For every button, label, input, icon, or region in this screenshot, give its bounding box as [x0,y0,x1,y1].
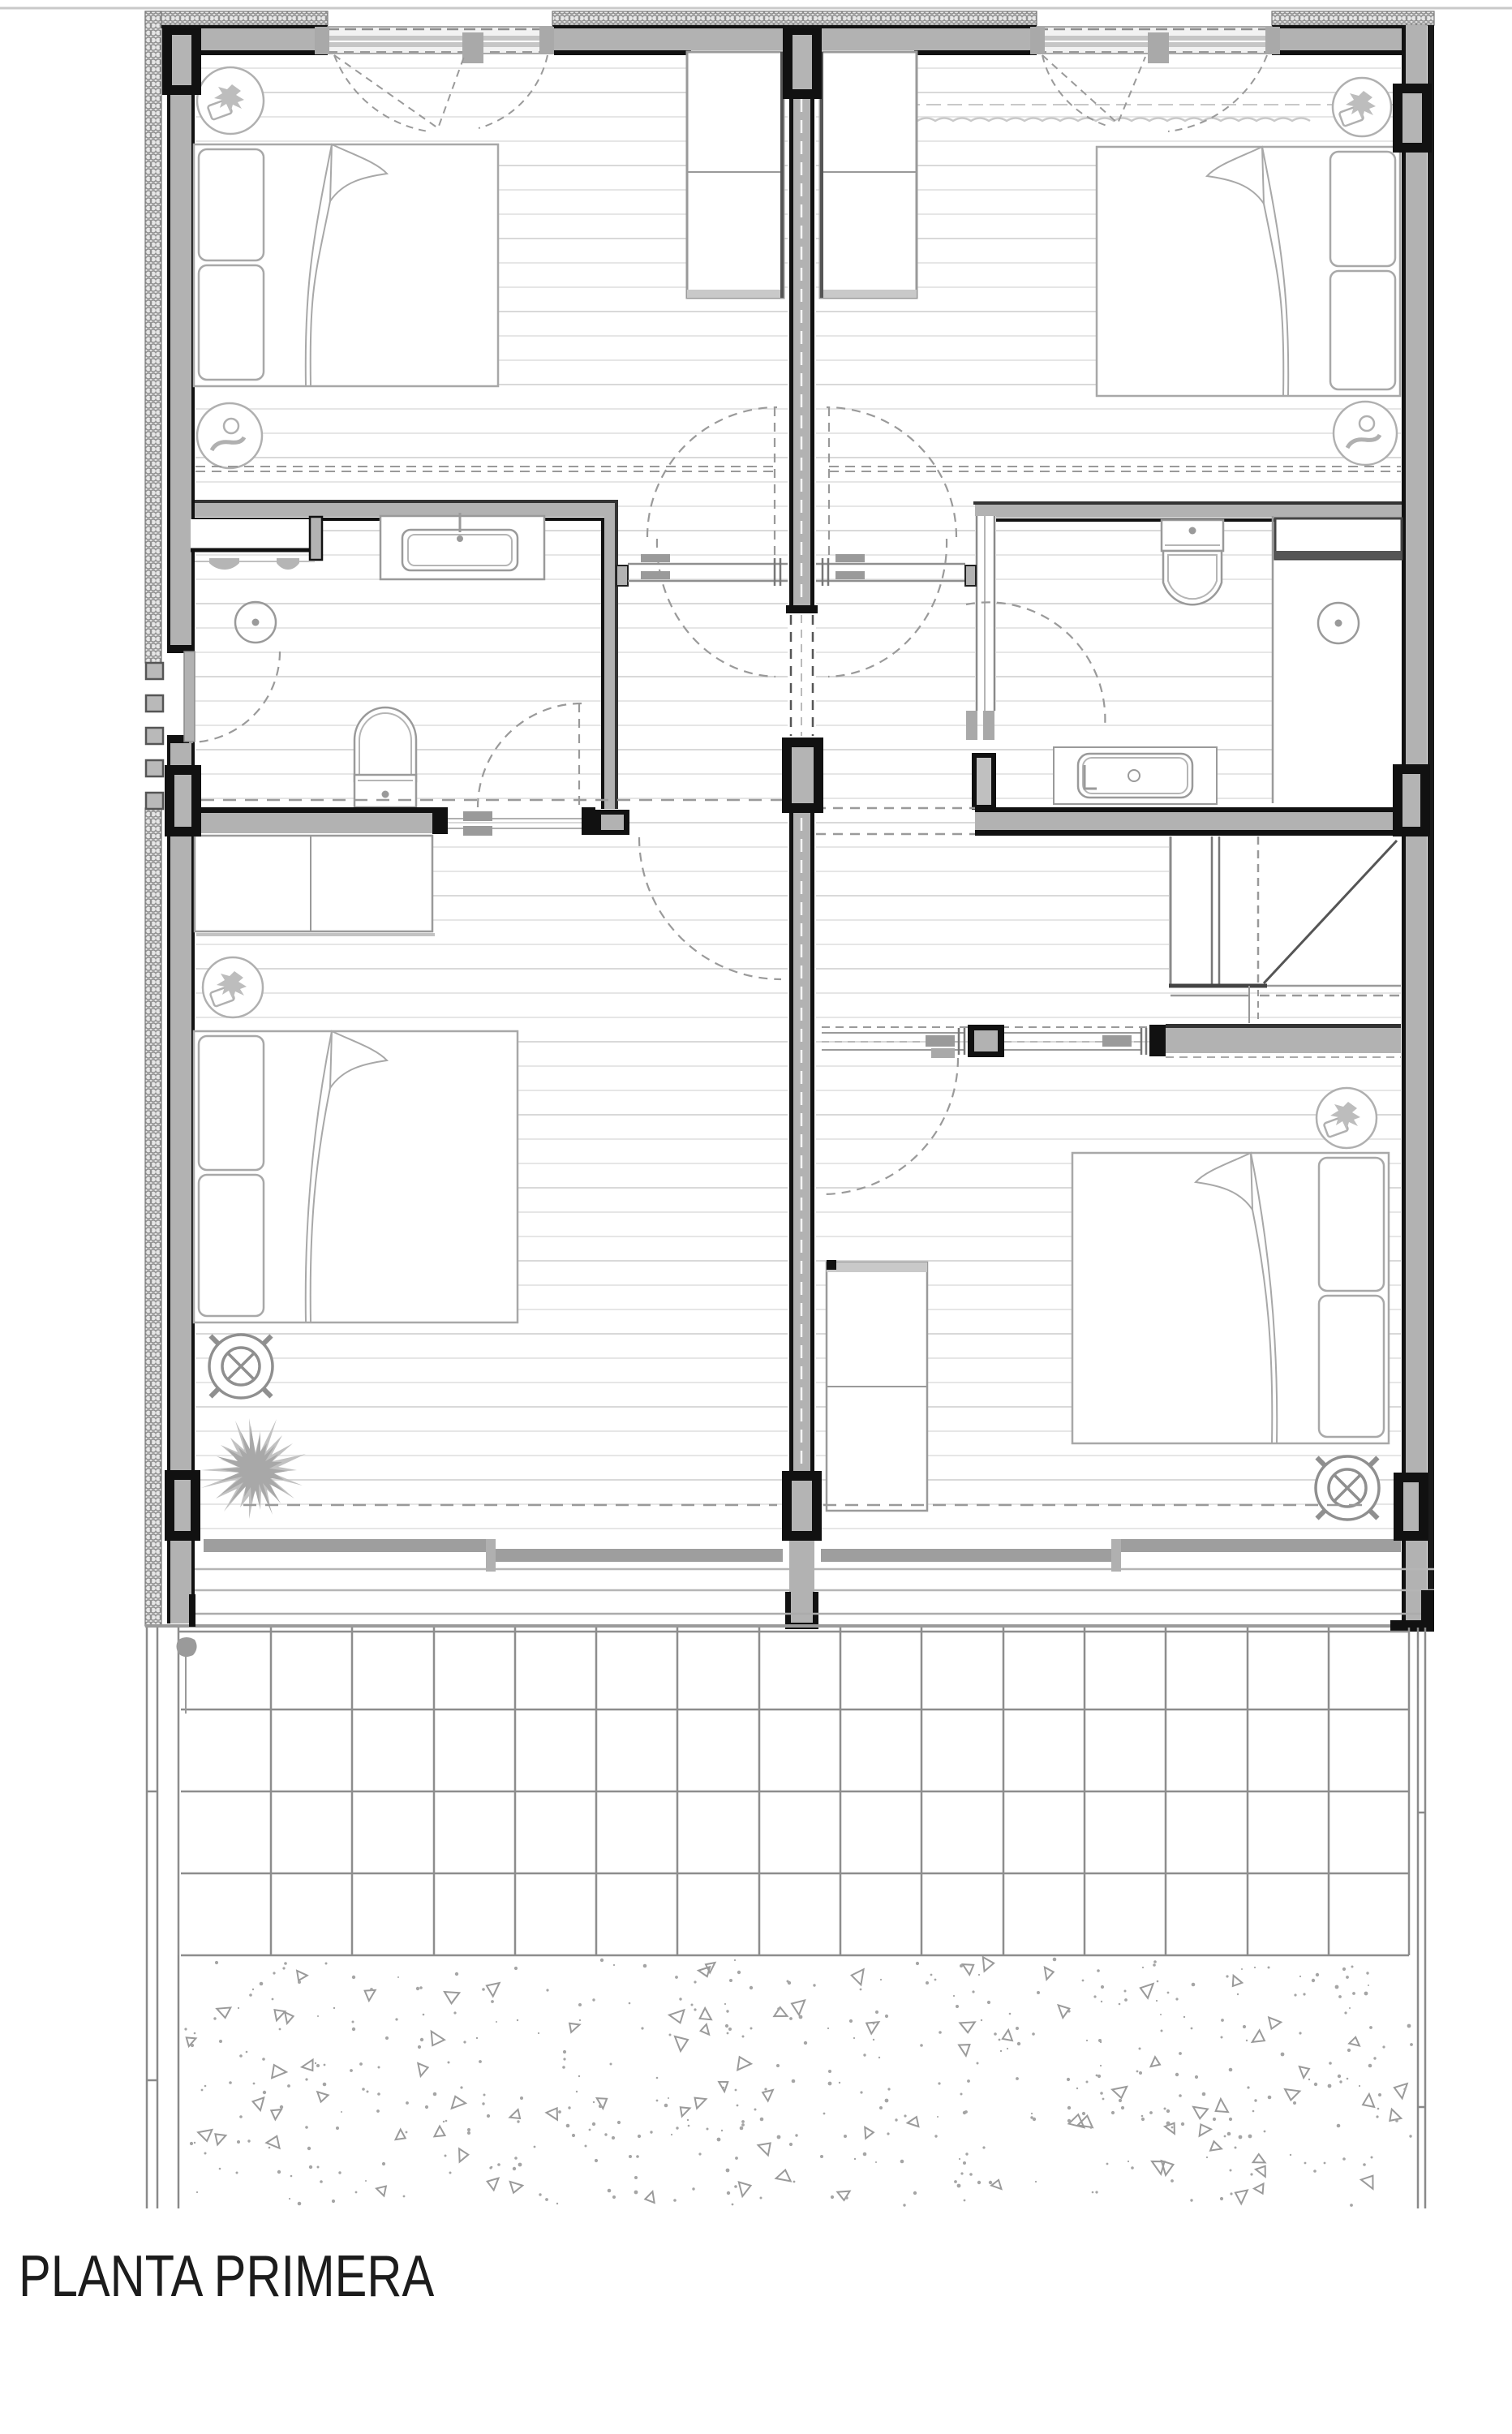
svg-text:PLANTA PRIMERA: PLANTA PRIMERA [19,2244,434,2310]
